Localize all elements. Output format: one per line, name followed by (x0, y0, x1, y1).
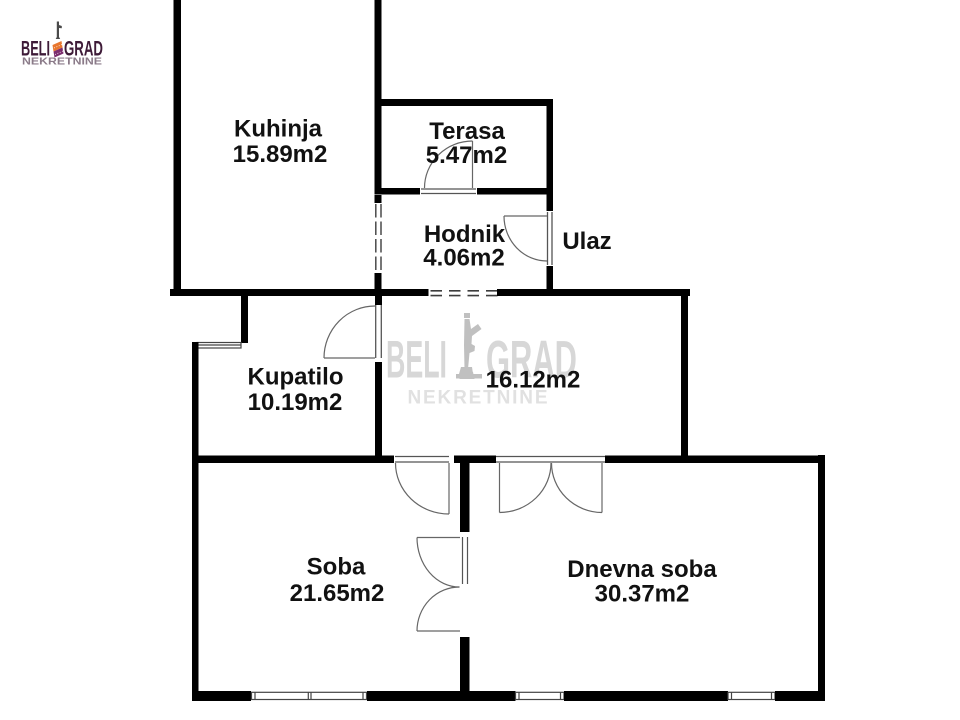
svg-text:15.89m2: 15.89m2 (233, 141, 328, 168)
svg-text:30.37m2: 30.37m2 (595, 581, 690, 608)
svg-text:Terasa: Terasa (429, 118, 505, 145)
svg-text:Soba: Soba (307, 554, 366, 581)
svg-text:Kupatilo: Kupatilo (248, 364, 344, 391)
svg-text:BELI: BELI (386, 331, 447, 390)
svg-text:NEKRETNINE: NEKRETNINE (22, 57, 102, 68)
svg-text:16.12m2: 16.12m2 (486, 367, 581, 394)
svg-text:Ulaz: Ulaz (562, 228, 611, 255)
svg-text:21.65m2: 21.65m2 (290, 580, 385, 607)
svg-text:5.47m2: 5.47m2 (426, 142, 507, 169)
svg-text:10.19m2: 10.19m2 (248, 389, 343, 416)
svg-text:Kuhinja: Kuhinja (234, 116, 323, 143)
svg-text:Dnevna soba: Dnevna soba (567, 556, 717, 583)
svg-text:4.06m2: 4.06m2 (423, 245, 504, 272)
